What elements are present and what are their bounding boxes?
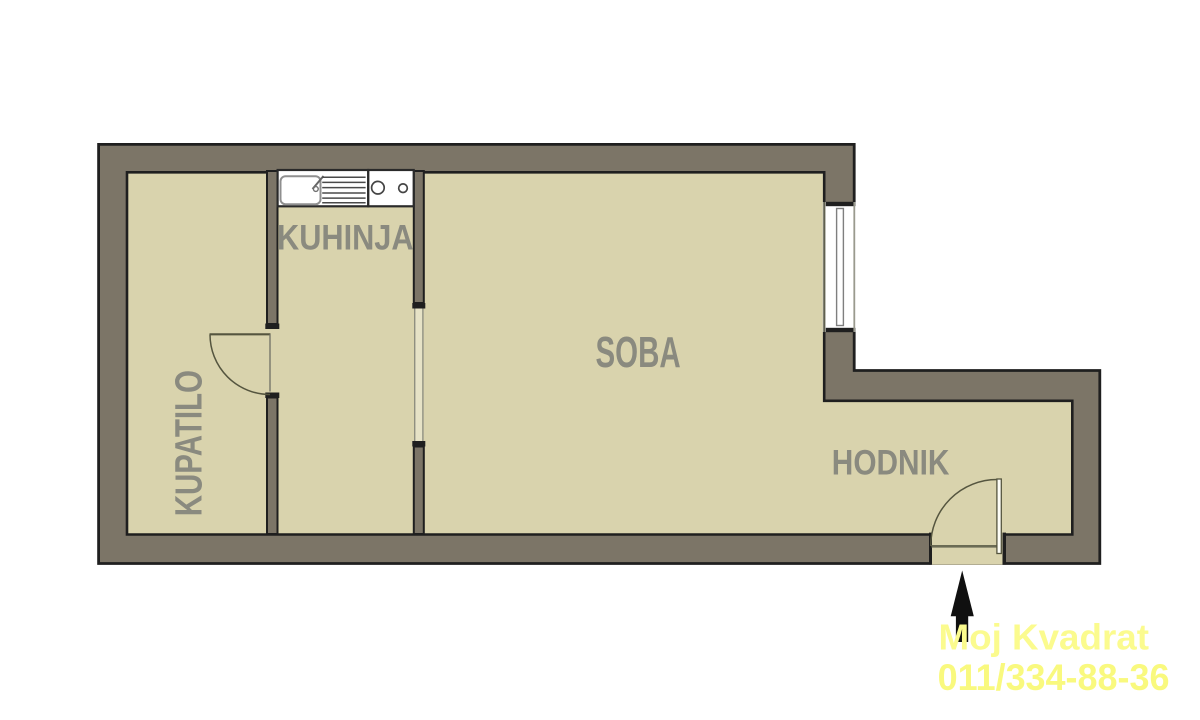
svg-text:011/334-88-36: 011/334-88-36 — [938, 656, 1170, 698]
svg-text:SOBA: SOBA — [596, 327, 681, 376]
svg-text:Moj Kvadrat: Moj Kvadrat — [939, 617, 1149, 658]
svg-text:HODNIK: HODNIK — [832, 443, 950, 482]
svg-text:KUHINJA: KUHINJA — [277, 218, 414, 258]
svg-text:KUPATILO: KUPATILO — [168, 370, 210, 516]
